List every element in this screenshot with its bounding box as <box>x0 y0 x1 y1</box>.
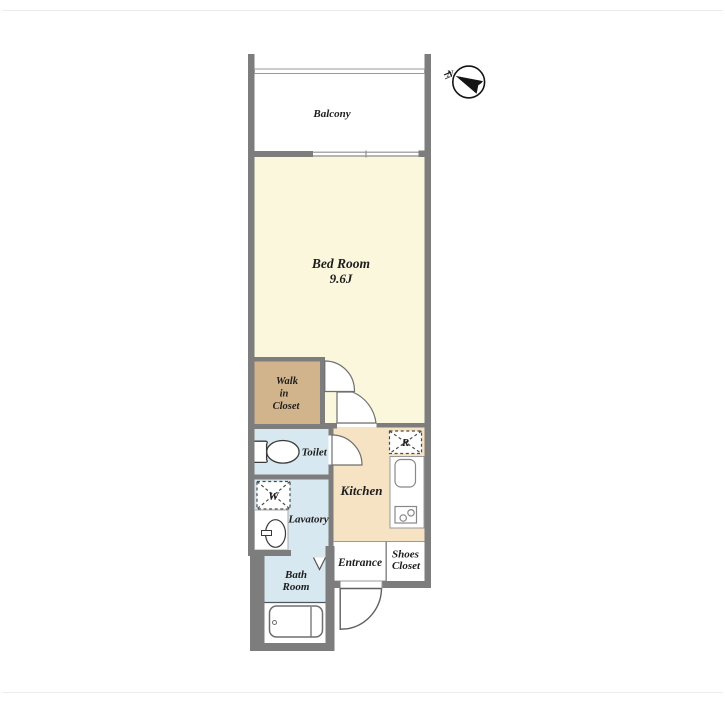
svg-text:Closet: Closet <box>392 560 421 572</box>
svg-text:Bed Room: Bed Room <box>311 256 370 271</box>
svg-text:Bath: Bath <box>284 569 307 581</box>
svg-text:Toilet: Toilet <box>302 446 328 458</box>
svg-text:Room: Room <box>282 581 310 593</box>
svg-text:Closet: Closet <box>273 401 301 412</box>
svg-text:Walk: Walk <box>276 376 299 387</box>
svg-text:9.6J: 9.6J <box>330 271 353 286</box>
svg-text:W: W <box>268 489 280 503</box>
svg-text:in: in <box>280 389 289 400</box>
svg-text:Kitchen: Kitchen <box>340 483 383 498</box>
svg-text:Balcony: Balcony <box>312 108 350 120</box>
svg-text:R: R <box>401 437 409 449</box>
svg-text:Lavatory: Lavatory <box>287 514 328 526</box>
svg-text:Entrance: Entrance <box>337 557 382 569</box>
svg-text:Shoes: Shoes <box>392 549 419 561</box>
